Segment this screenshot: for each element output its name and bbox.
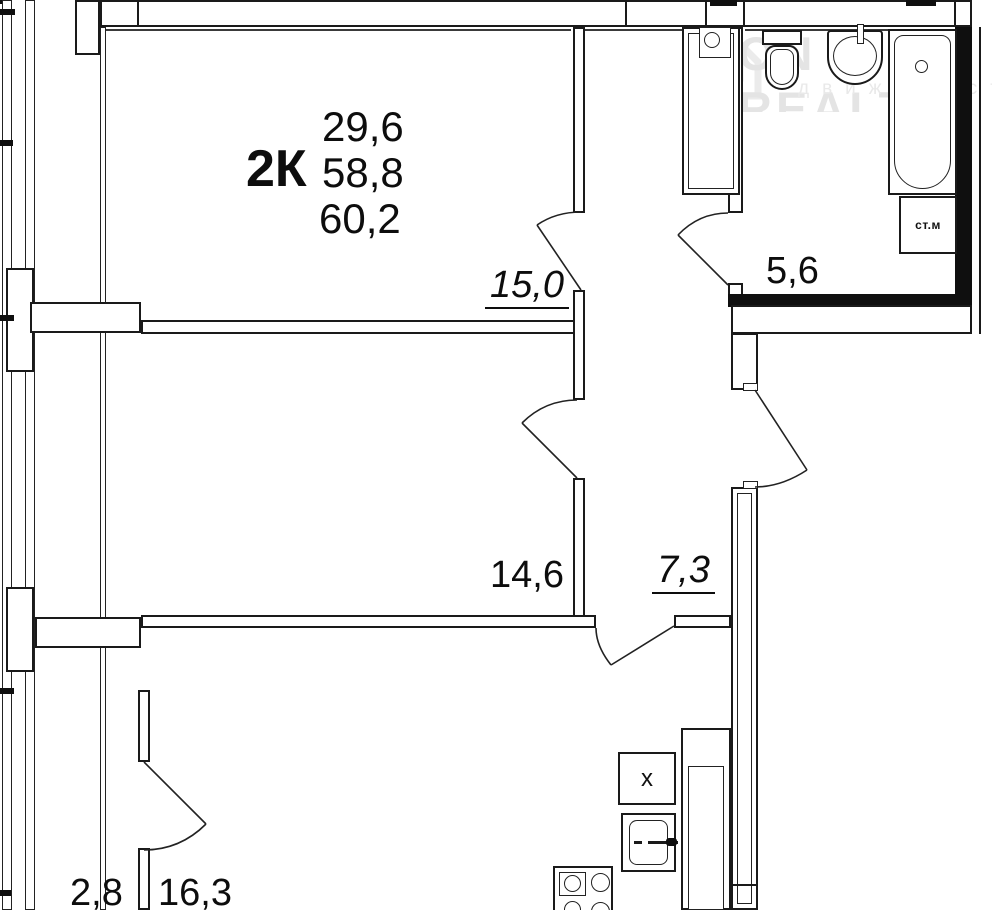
total-area-value: 60,2	[319, 198, 401, 240]
top-wall	[100, 0, 972, 27]
interior-wall-block	[35, 617, 141, 648]
sink-faucet-icon	[857, 24, 864, 44]
wall-segment	[137, 0, 139, 27]
wall-pier	[6, 587, 34, 672]
exterior-face-line	[979, 27, 981, 334]
glazing-tick	[0, 9, 15, 15]
room-west-wall	[100, 27, 106, 910]
wall-segment	[585, 29, 682, 31]
door-swing-symbols	[0, 0, 992, 910]
door-leaf	[611, 626, 674, 665]
door-leaf	[678, 235, 728, 285]
window-wall	[25, 0, 35, 910]
door-arc	[522, 400, 577, 423]
vent-box-label: х	[641, 765, 653, 793]
area-value: 58,8	[322, 152, 404, 194]
counter-x-box: х	[618, 752, 676, 805]
wall-segment	[743, 0, 745, 27]
door-arc	[144, 824, 206, 850]
stove-burner	[591, 873, 610, 892]
wall-segment	[954, 0, 956, 27]
kitchen-counter-inner	[688, 766, 724, 910]
interior-wall-block	[30, 302, 141, 333]
balcony-door-sidelight	[138, 690, 150, 762]
vent-hole-icon	[704, 32, 720, 48]
wall-pier	[75, 0, 100, 55]
glazing-tick	[0, 890, 11, 896]
glazing-tick	[0, 688, 14, 694]
glazing-tick	[0, 315, 14, 321]
toilet-tank-icon	[762, 30, 802, 45]
wall-stub	[710, 0, 737, 6]
hall-east-wall-inner	[737, 493, 752, 904]
bathtub-inner	[894, 35, 951, 189]
living-area-value: 29,6	[322, 106, 404, 148]
hall-east-pier	[731, 333, 758, 390]
bathtub-drain	[915, 60, 928, 73]
stove-burner	[564, 875, 581, 892]
door-leaf	[522, 423, 577, 478]
door-arc	[678, 213, 728, 235]
washing-machine-icon: ст.м	[899, 196, 957, 254]
wall-segment	[625, 0, 627, 27]
glazing-tick	[0, 140, 13, 146]
door-arc	[537, 212, 581, 225]
kitchen-faucet-tip	[666, 838, 677, 846]
toilet-bowl-inner	[770, 49, 794, 85]
door-leaf	[755, 390, 807, 470]
wall-stub	[906, 0, 936, 6]
wall-segment	[731, 884, 758, 886]
floor-plan: ON REALT движимост	[0, 0, 992, 910]
interior-wall	[141, 320, 576, 334]
label-bedroom-area: 14,6	[490, 556, 564, 594]
label-kitchen-area: 16,3	[158, 874, 232, 910]
door-jamb	[743, 481, 758, 489]
sink-basin	[833, 36, 877, 76]
wall-below-bath	[731, 305, 972, 334]
door-arc	[755, 470, 807, 487]
door-jamb	[743, 383, 758, 391]
label-balcony-area: 2,8	[70, 874, 123, 910]
door-leaf	[144, 762, 206, 824]
interior-wall	[573, 478, 585, 618]
label-bathroom-area: 5,6	[766, 252, 819, 290]
washing-machine-label: ст.м	[915, 218, 941, 232]
label-hallway-area: 7,3	[652, 551, 715, 594]
bath-east-wall	[955, 27, 972, 296]
interior-wall	[674, 615, 731, 628]
apartment-type-label: 2К	[246, 143, 307, 195]
label-living-room-area: 15,0	[485, 266, 569, 309]
kitchen-sink-mark	[634, 841, 642, 844]
interior-wall	[573, 290, 585, 400]
interior-wall	[573, 27, 585, 213]
balcony-window-lower	[138, 848, 150, 910]
wall-segment	[106, 29, 571, 31]
wall-segment	[705, 0, 707, 27]
door-arc	[596, 628, 611, 665]
balcony-glazing	[2, 0, 12, 910]
interior-wall	[141, 615, 596, 628]
